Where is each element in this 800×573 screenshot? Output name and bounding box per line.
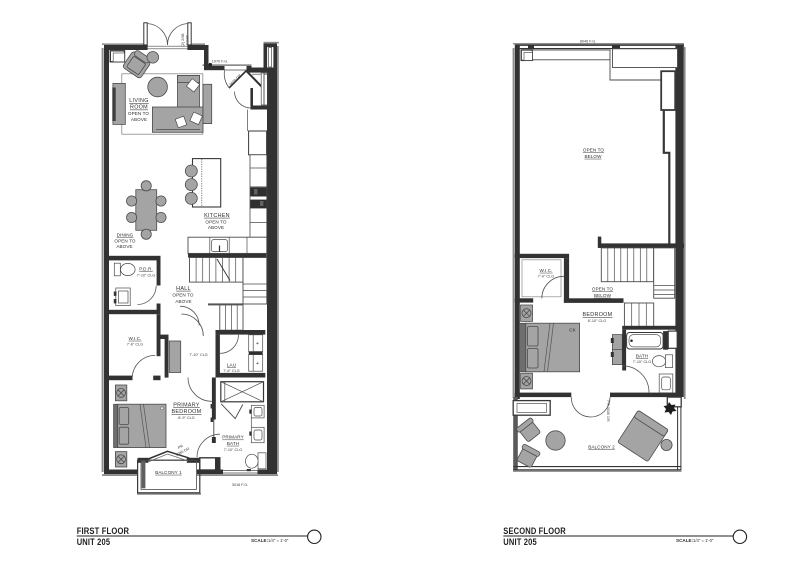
svg-text:ROOM: ROOM bbox=[130, 105, 148, 111]
svg-text:ABOVE: ABOVE bbox=[116, 244, 132, 249]
svg-text:UNIT 205: UNIT 205 bbox=[503, 536, 537, 547]
svg-text:1/4" = 1'-0": 1/4" = 1'-0" bbox=[693, 538, 714, 543]
svg-text:ABOVE: ABOVE bbox=[175, 299, 191, 304]
svg-text:7'-10" CLG: 7'-10" CLG bbox=[137, 273, 156, 277]
svg-text:BELOW: BELOW bbox=[594, 293, 612, 298]
svg-text:OPEN TO: OPEN TO bbox=[592, 286, 614, 291]
svg-text:3016 F.G.: 3016 F.G. bbox=[232, 483, 248, 487]
svg-text:7'-0" CLG: 7'-0" CLG bbox=[538, 275, 554, 279]
svg-text:PRIMARY: PRIMARY bbox=[222, 435, 244, 440]
svg-text:UNIT 205: UNIT 205 bbox=[77, 536, 111, 547]
svg-text:W.I.C.: W.I.C. bbox=[128, 336, 141, 341]
svg-text:+: + bbox=[256, 361, 259, 367]
svg-text:OPEN TO: OPEN TO bbox=[205, 219, 227, 224]
svg-text:FIRST FLOOR: FIRST FLOOR bbox=[77, 525, 130, 536]
svg-text:PRIMARY: PRIMARY bbox=[173, 402, 200, 408]
svg-text:ABOVE: ABOVE bbox=[131, 117, 147, 122]
svg-text:8046 F.G.: 8046 F.G. bbox=[580, 40, 596, 44]
svg-text:BATH: BATH bbox=[227, 441, 239, 446]
svg-text:LAU: LAU bbox=[227, 362, 236, 367]
svg-text:OPEN TO: OPEN TO bbox=[583, 147, 605, 152]
svg-text:PR 3030 DR: PR 3030 DR bbox=[606, 400, 610, 422]
svg-text:HALL: HALL bbox=[176, 286, 191, 292]
svg-text:OPEN TO: OPEN TO bbox=[172, 292, 194, 297]
svg-text:OPEN TO: OPEN TO bbox=[114, 238, 136, 243]
svg-text:1/4" = 1'-0": 1/4" = 1'-0" bbox=[268, 538, 289, 543]
svg-text:COAT: COAT bbox=[186, 34, 190, 45]
svg-text:7'-10" CLG: 7'-10" CLG bbox=[189, 353, 208, 357]
svg-text:7'-10" CLG: 7'-10" CLG bbox=[224, 448, 243, 452]
svg-text:P.D.R.: P.D.R. bbox=[139, 266, 153, 271]
svg-text:(2) 2/68: (2) 2/68 bbox=[181, 33, 185, 46]
svg-text:BATH: BATH bbox=[636, 353, 648, 358]
svg-text:8'-9" CLG: 8'-9" CLG bbox=[178, 416, 194, 420]
svg-text:SCALE:: SCALE: bbox=[251, 538, 269, 543]
svg-text:ABOVE: ABOVE bbox=[208, 225, 224, 230]
svg-text:BALCONY 1: BALCONY 1 bbox=[155, 470, 182, 475]
svg-text:BEDROOM: BEDROOM bbox=[583, 312, 613, 318]
svg-text:7'-10" CLG: 7'-10" CLG bbox=[633, 360, 652, 364]
svg-text:+: + bbox=[256, 341, 259, 347]
svg-text:LIVING: LIVING bbox=[129, 98, 148, 104]
svg-text:BALCONY 2: BALCONY 2 bbox=[588, 444, 615, 449]
svg-text:7'-6" CLG: 7'-6" CLG bbox=[127, 343, 143, 347]
svg-text:KITCHEN: KITCHEN bbox=[204, 213, 230, 219]
svg-text:1070 F.G.: 1070 F.G. bbox=[212, 60, 228, 64]
svg-text:BEDROOM: BEDROOM bbox=[172, 409, 202, 415]
svg-text:SECOND FLOOR: SECOND FLOOR bbox=[503, 525, 566, 536]
svg-text:DINING: DINING bbox=[117, 233, 134, 238]
svg-text:W.I.C.: W.I.C. bbox=[539, 268, 552, 273]
svg-text:CK: CK bbox=[569, 328, 576, 333]
svg-text:7'-6" CLG: 7'-6" CLG bbox=[223, 369, 239, 373]
svg-text:SCALE:: SCALE: bbox=[676, 538, 694, 543]
svg-text:8'-10" CLG: 8'-10" CLG bbox=[588, 319, 607, 323]
svg-text:BELOW: BELOW bbox=[584, 154, 602, 159]
svg-text:OPEN TO: OPEN TO bbox=[128, 111, 150, 116]
